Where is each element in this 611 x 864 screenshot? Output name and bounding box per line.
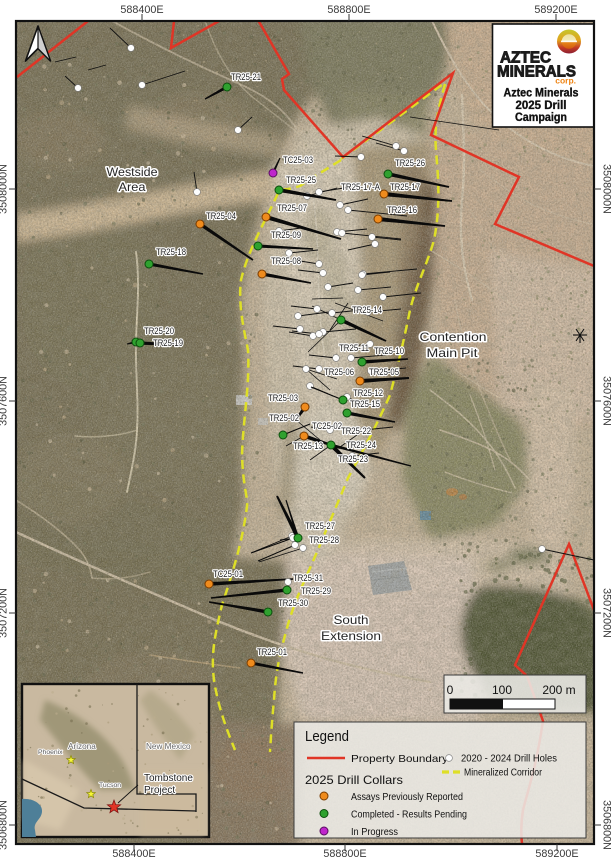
svg-text:TR25-02: TR25-02	[269, 413, 299, 423]
svg-text:TR25-26: TR25-26	[395, 158, 425, 168]
svg-text:TR25-20: TR25-20	[144, 326, 174, 336]
svg-text:Assays Previously Reported: Assays Previously Reported	[351, 792, 463, 803]
svg-text:TC25-01: TC25-01	[213, 569, 243, 579]
svg-text:TC25-03: TC25-03	[283, 155, 313, 165]
svg-text:TR25-15: TR25-15	[350, 399, 380, 409]
svg-text:200 m: 200 m	[542, 683, 575, 697]
svg-text:Legend: Legend	[305, 728, 349, 745]
svg-text:589200E: 589200E	[534, 4, 577, 16]
svg-text:TR25-14: TR25-14	[352, 305, 382, 315]
svg-text:Phoenix: Phoenix	[38, 749, 63, 756]
svg-text:South: South	[334, 613, 369, 627]
svg-text:TR25-12: TR25-12	[353, 388, 383, 398]
svg-text:588400E: 588400E	[112, 848, 155, 860]
svg-text:TR25-25: TR25-25	[286, 175, 316, 185]
svg-text:TR25-22: TR25-22	[341, 426, 371, 436]
svg-text:TR25-18: TR25-18	[156, 247, 186, 257]
svg-text:Aztec Minerals: Aztec Minerals	[504, 88, 579, 100]
svg-text:3507200N: 3507200N	[0, 588, 10, 638]
svg-text:3507600N: 3507600N	[0, 376, 10, 426]
svg-text:Area: Area	[119, 180, 146, 194]
svg-text:Mineralized Corridor: Mineralized Corridor	[464, 768, 543, 779]
svg-text:TR25-16: TR25-16	[387, 205, 417, 215]
svg-text:TR25-31: TR25-31	[293, 573, 323, 583]
svg-text:Project: Project	[144, 785, 175, 796]
svg-text:TR25-04: TR25-04	[206, 211, 236, 221]
svg-text:TR25-30: TR25-30	[278, 598, 308, 608]
svg-text:TR25-07: TR25-07	[277, 203, 307, 213]
svg-text:TR25-17-A: TR25-17-A	[341, 182, 380, 192]
svg-text:TR25-01: TR25-01	[257, 647, 287, 657]
svg-text:3506800N: 3506800N	[0, 800, 10, 850]
svg-text:2025 Drill Collars: 2025 Drill Collars	[305, 773, 403, 787]
svg-text:TR25-29: TR25-29	[301, 586, 331, 596]
svg-text:3508000N: 3508000N	[0, 164, 10, 214]
svg-text:TR25-13: TR25-13	[293, 441, 323, 451]
svg-text:TC25-02: TC25-02	[312, 421, 342, 431]
svg-text:TR25-08: TR25-08	[271, 256, 301, 266]
svg-text:TR25-06: TR25-06	[324, 367, 354, 377]
svg-text:Contention: Contention	[420, 330, 487, 344]
svg-text:TR25-27: TR25-27	[305, 521, 335, 531]
svg-text:TR25-10: TR25-10	[374, 346, 404, 356]
svg-text:TR25-28: TR25-28	[309, 535, 339, 545]
svg-text:3507200N: 3507200N	[601, 588, 611, 638]
svg-text:Tucson: Tucson	[99, 782, 121, 789]
svg-text:TR25-21: TR25-21	[231, 72, 261, 82]
svg-text:588800E: 588800E	[327, 4, 370, 16]
svg-text:TR25-23: TR25-23	[338, 454, 368, 464]
svg-text:Westside: Westside	[107, 165, 158, 179]
svg-text:Property Boundary: Property Boundary	[351, 753, 449, 765]
svg-text:Completed - Results Pending: Completed - Results Pending	[351, 809, 467, 820]
svg-text:TR25-11: TR25-11	[339, 343, 369, 353]
svg-text:Campaign: Campaign	[515, 112, 567, 124]
svg-text:Main Pit: Main Pit	[427, 346, 479, 360]
svg-text:0: 0	[447, 683, 454, 697]
svg-text:100: 100	[492, 683, 512, 697]
svg-text:588400E: 588400E	[120, 4, 163, 16]
svg-text:3506800N: 3506800N	[601, 800, 611, 850]
svg-text:corp.: corp.	[555, 76, 576, 86]
svg-text:3508000N: 3508000N	[601, 164, 611, 214]
svg-text:Tombstone: Tombstone	[144, 773, 193, 784]
svg-text:2020 - 2024 Drill Holes: 2020 - 2024 Drill Holes	[461, 754, 557, 765]
svg-text:TR25-19: TR25-19	[153, 338, 183, 348]
svg-text:In Progress: In Progress	[351, 827, 398, 838]
svg-text:New Mexico: New Mexico	[146, 742, 191, 751]
svg-text:2025 Drill: 2025 Drill	[516, 100, 567, 112]
svg-text:589200E: 589200E	[535, 848, 578, 860]
svg-text:Arizona: Arizona	[68, 742, 96, 751]
svg-text:TR25-05: TR25-05	[369, 367, 399, 377]
svg-text:3507600N: 3507600N	[601, 376, 611, 426]
svg-text:TR25-09: TR25-09	[271, 230, 301, 240]
svg-text:TR25-03: TR25-03	[268, 393, 298, 403]
svg-text:Extension: Extension	[321, 629, 381, 643]
svg-text:TR25-24: TR25-24	[346, 440, 376, 450]
svg-text:588800E: 588800E	[323, 848, 366, 860]
svg-text:TR25-17: TR25-17	[390, 182, 420, 192]
